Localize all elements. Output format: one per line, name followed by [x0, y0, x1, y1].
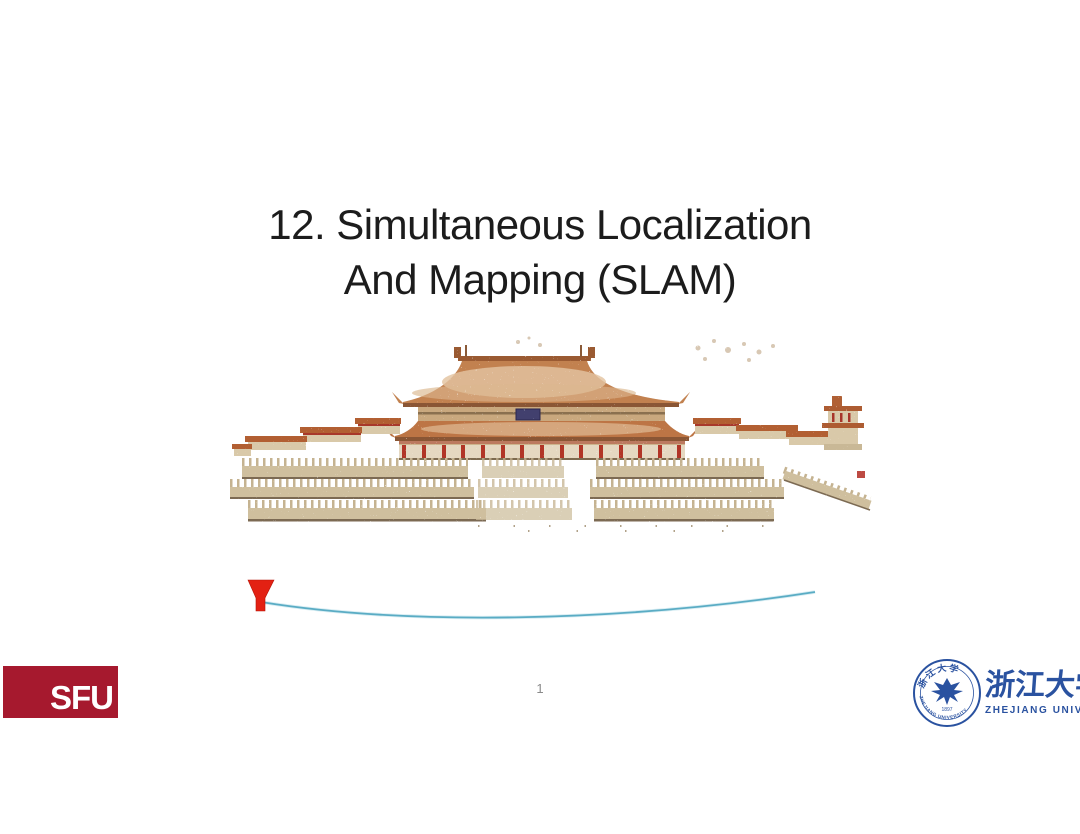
sfu-logo-text: SFU	[50, 681, 118, 718]
title-line-2: And Mapping (SLAM)	[0, 252, 1080, 307]
zju-logo-text: 浙江大学 ZHEJIANG UNIVERSITY	[985, 670, 1080, 716]
camera-frustum-marker	[248, 580, 274, 611]
zju-logo: 浙江大学 ZHEJIANG UNIVERSITY 1897 浙江大学 ZHEJI…	[912, 655, 1080, 730]
zju-chinese-name: 浙江大学	[984, 670, 1080, 702]
zju-seal-icon: 浙江大学 ZHEJIANG UNIVERSITY 1897	[912, 658, 982, 728]
trajectory-curve-halo	[261, 592, 815, 618]
sfu-logo: SFU	[3, 666, 118, 718]
title-line-1: 12. Simultaneous Localization	[0, 197, 1080, 252]
presentation-slide: 12. Simultaneous Localization And Mappin…	[0, 0, 1080, 834]
zju-seal-year: 1897	[941, 707, 952, 713]
slide-title: 12. Simultaneous Localization And Mappin…	[0, 197, 1080, 307]
zju-english-name: ZHEJIANG UNIVERSITY	[985, 705, 1080, 716]
camera-trajectory	[240, 576, 840, 632]
point-cloud-figure	[228, 334, 873, 542]
